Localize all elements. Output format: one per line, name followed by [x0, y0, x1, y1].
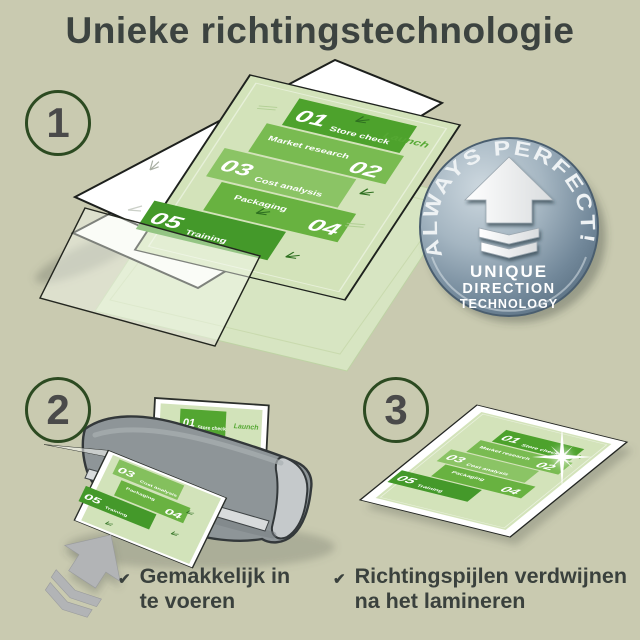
step-number-3: 3 [363, 377, 429, 443]
step-number-1: 1 [25, 90, 91, 156]
always-perfect-badge: ALWAYS PERFECT! UNIQUE DIRECTION TECHNOL… [412, 127, 612, 332]
badge-line-direction: DIRECTION [462, 281, 555, 297]
badge-line-technology: TECHNOLOGY [460, 297, 558, 311]
benefit-line-2: na het lamineren [355, 589, 526, 613]
badge-line-unique: UNIQUE [470, 262, 548, 281]
benefit-line-1: Richtingspijlen verdwijnen [355, 564, 627, 588]
benefit-text: Richtingspijlen verdwijnen na het lamine… [355, 564, 627, 614]
checkmark-icon: ✔ [333, 567, 346, 592]
benefit-line-2: te voeren [140, 589, 236, 613]
page-title: Unieke richtingstechnologie [0, 10, 640, 52]
benefit-text: Gemakkelijk in te voeren [140, 564, 291, 614]
benefit-item-arrows: ✔ Richtingspijlen verdwijnen na het lami… [333, 564, 627, 614]
benefit-line-1: Gemakkelijk in [140, 564, 291, 588]
poster: Unieke richtingstechnologie 01 [0, 0, 640, 640]
benefit-item-feed: ✔ Gemakkelijk in te voeren [118, 564, 290, 614]
checkmark-icon: ✔ [118, 567, 131, 592]
step-number-2: 2 [25, 377, 91, 443]
laminator-end-cap [272, 457, 307, 538]
